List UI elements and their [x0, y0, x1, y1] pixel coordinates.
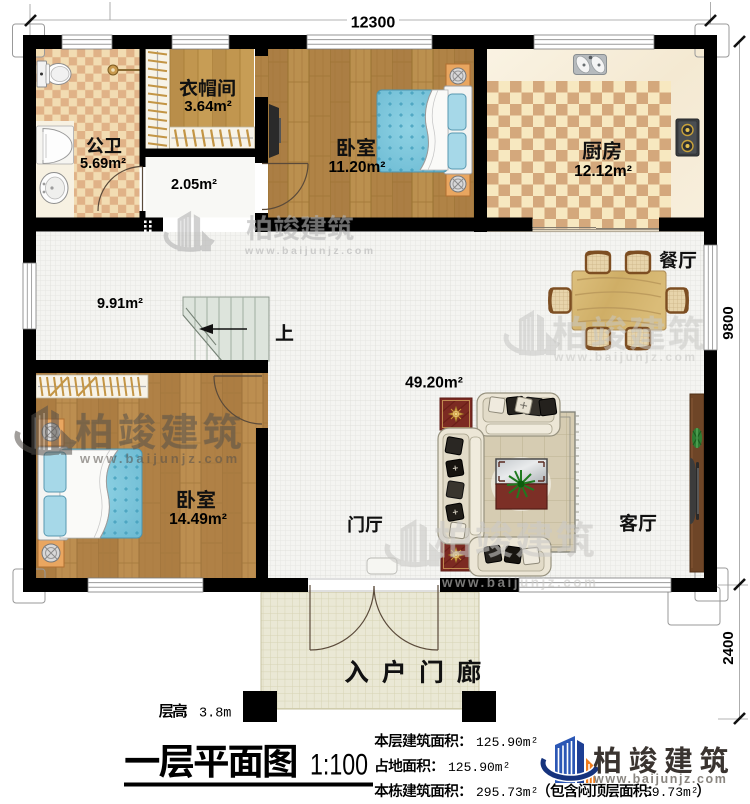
svg-text:125.90m²: 125.90m² — [448, 760, 510, 775]
svg-text:2.05m²: 2.05m² — [171, 177, 217, 193]
svg-text:9800: 9800 — [720, 306, 737, 339]
svg-text:：: ： — [182, 703, 196, 719]
svg-text:9.91m²: 9.91m² — [97, 296, 143, 312]
svg-text:3.8m: 3.8m — [199, 707, 231, 722]
svg-text:49.20m²: 49.20m² — [405, 375, 463, 392]
svg-text:12300: 12300 — [351, 15, 396, 32]
svg-text:1:100: 1:100 — [310, 749, 368, 782]
svg-text:295.73m²: 295.73m² — [476, 785, 538, 800]
svg-text:www.baijunjz.com: www.baijunjz.com — [593, 772, 727, 786]
svg-text:3.64m²: 3.64m² — [184, 98, 232, 115]
svg-text:5.69m²: 5.69m² — [80, 156, 126, 172]
svg-text:12.12m²: 12.12m² — [574, 163, 632, 180]
svg-text:www.baijunjz.com: www.baijunjz.com — [244, 245, 376, 257]
svg-text:www.baijunjz.com: www.baijunjz.com — [79, 451, 240, 466]
svg-text:2400: 2400 — [720, 631, 737, 664]
svg-text:59.73m²: 59.73m² — [644, 785, 699, 800]
svg-text:125.90m²: 125.90m² — [476, 735, 538, 750]
svg-text:11.20m²: 11.20m² — [329, 159, 386, 176]
svg-text:14.49m²: 14.49m² — [169, 511, 227, 528]
svg-text:www.baijunjz.com: www.baijunjz.com — [553, 350, 698, 364]
svg-text:www.baijunjz.com: www.baijunjz.com — [441, 575, 599, 590]
